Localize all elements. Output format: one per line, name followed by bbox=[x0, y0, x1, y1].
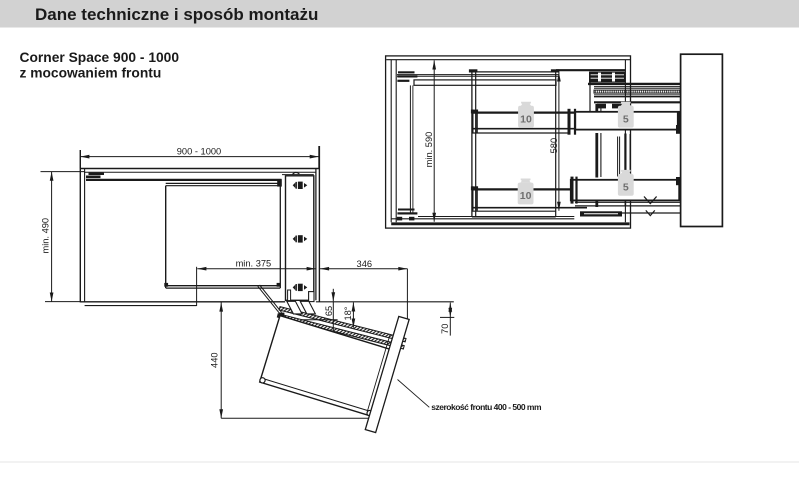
svg-text:10: 10 bbox=[520, 190, 532, 202]
svg-text:5: 5 bbox=[623, 113, 629, 125]
svg-text:900 - 1000: 900 - 1000 bbox=[177, 146, 221, 156]
svg-text:70: 70 bbox=[440, 324, 450, 334]
svg-text:min. 490: min. 490 bbox=[41, 218, 51, 254]
svg-text:szerokość frontu 400 - 500 mm: szerokość frontu 400 - 500 mm bbox=[431, 402, 542, 412]
svg-text:10: 10 bbox=[520, 113, 532, 125]
svg-text:min. 375: min. 375 bbox=[236, 259, 272, 269]
svg-text:440: 440 bbox=[210, 352, 220, 368]
svg-text:580: 580 bbox=[549, 138, 559, 154]
svg-text:Dane techniczne i sposób monta: Dane techniczne i sposób montażu bbox=[35, 5, 318, 24]
svg-text:65: 65 bbox=[324, 306, 334, 316]
svg-text:18°: 18° bbox=[343, 306, 353, 320]
svg-text:min. 590: min. 590 bbox=[424, 132, 434, 168]
svg-text:z mocowaniem frontu: z mocowaniem frontu bbox=[20, 66, 162, 81]
svg-text:5: 5 bbox=[623, 182, 629, 194]
svg-text:Corner Space 900 - 1000: Corner Space 900 - 1000 bbox=[20, 50, 180, 65]
svg-text:346: 346 bbox=[357, 259, 373, 269]
